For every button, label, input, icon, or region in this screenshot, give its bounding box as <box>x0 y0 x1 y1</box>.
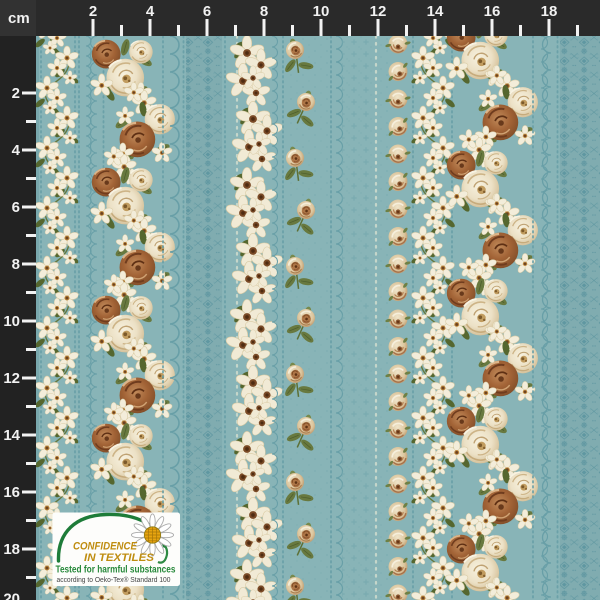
svg-text:10: 10 <box>3 313 20 330</box>
svg-text:2: 2 <box>89 3 97 20</box>
svg-text:CONFIDENCE: CONFIDENCE <box>73 541 138 553</box>
svg-text:4: 4 <box>12 142 21 159</box>
svg-text:according to Oeko-Tex® Standar: according to Oeko-Tex® Standard 100 <box>57 576 171 584</box>
svg-text:6: 6 <box>203 3 211 20</box>
svg-text:8: 8 <box>12 256 20 273</box>
svg-text:16: 16 <box>3 484 20 501</box>
svg-text:6: 6 <box>12 199 20 216</box>
svg-text:8: 8 <box>260 3 268 20</box>
svg-text:18: 18 <box>541 3 558 20</box>
svg-text:14: 14 <box>3 427 20 444</box>
svg-text:14: 14 <box>427 3 444 20</box>
svg-text:12: 12 <box>370 3 387 20</box>
svg-text:Tested for harmful substances: Tested for harmful substances <box>56 565 176 576</box>
svg-text:4: 4 <box>146 3 155 20</box>
svg-text:20: 20 <box>3 591 20 600</box>
svg-text:cm: cm <box>8 10 30 27</box>
svg-text:18: 18 <box>3 541 20 558</box>
svg-text:IN TEXTILES: IN TEXTILES <box>84 552 155 564</box>
svg-text:10: 10 <box>313 3 330 20</box>
svg-text:2: 2 <box>12 85 20 102</box>
svg-text:16: 16 <box>484 3 501 20</box>
svg-text:12: 12 <box>3 370 20 387</box>
